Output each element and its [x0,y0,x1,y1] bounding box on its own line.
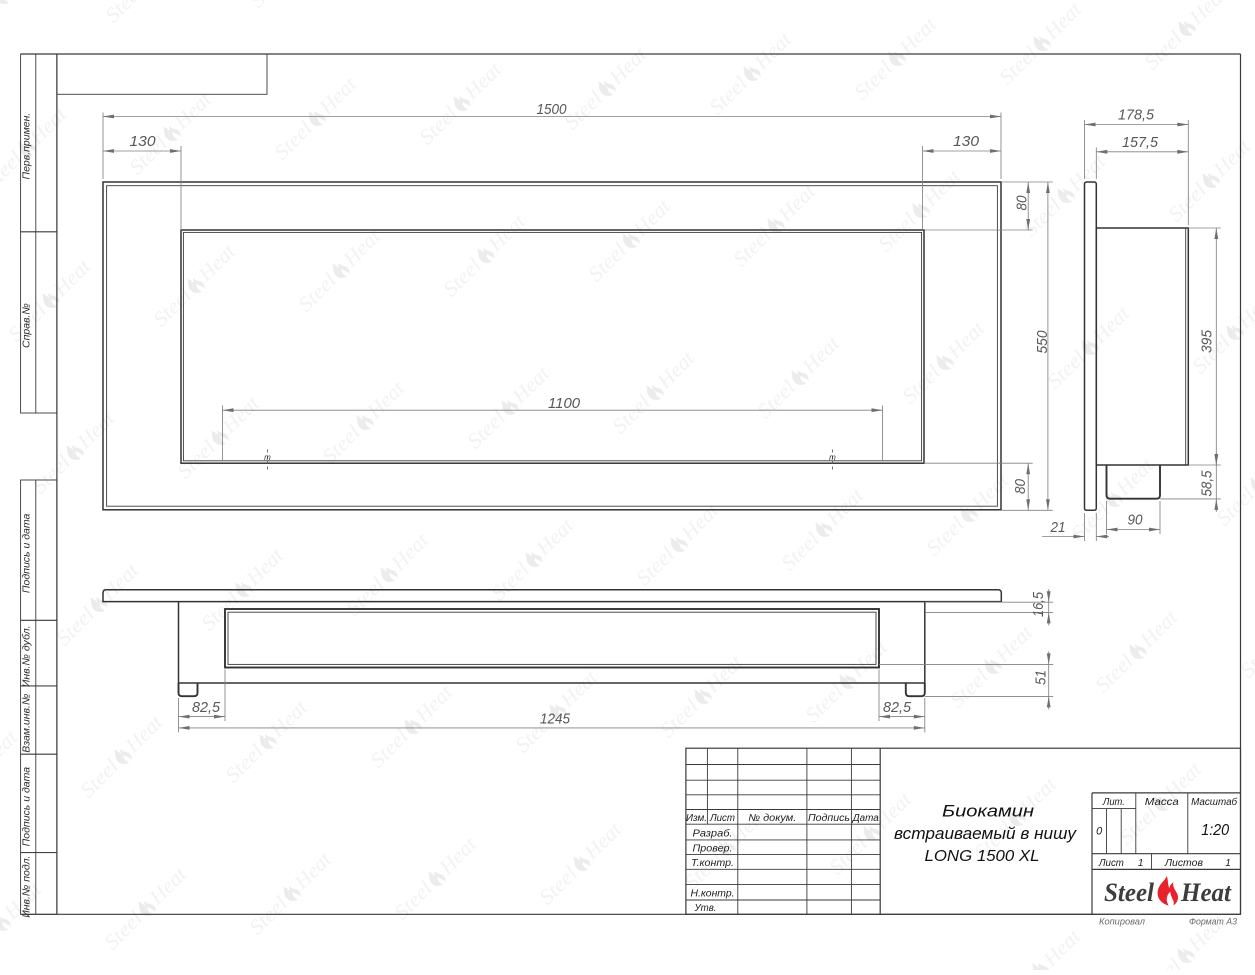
svg-text:82,5: 82,5 [192,699,221,716]
svg-text:16,5: 16,5 [1030,591,1047,617]
svg-text:Лист: Лист [709,813,735,824]
svg-text:Steel: Steel [1104,878,1155,907]
svg-text:Дата: Дата [852,813,879,824]
svg-text:Взам.инв.№: Взам.инв.№ [21,694,33,753]
svg-text:Heat: Heat [1180,878,1232,907]
svg-text:Инв.№ подл.: Инв.№ подл. [21,856,33,918]
svg-text:Масса: Масса [1145,797,1179,808]
svg-text:157,5: 157,5 [1122,134,1159,151]
svg-text:80: 80 [1014,195,1031,211]
svg-text:m: m [264,453,271,462]
svg-text:51: 51 [1032,670,1049,685]
svg-text:80: 80 [1012,478,1029,494]
svg-text:Изм.: Изм. [686,813,707,824]
svg-text:90: 90 [1128,512,1144,529]
svg-text:Лист: Лист [1098,858,1124,869]
svg-text:m: m [829,453,836,462]
svg-text:Разраб.: Разраб. [693,827,733,839]
svg-text:Н.контр.: Н.контр. [691,889,735,900]
svg-text:0: 0 [1096,826,1103,838]
svg-text:Лит.: Лит. [1102,797,1125,808]
svg-text:1100: 1100 [548,395,581,412]
svg-text:130: 130 [953,133,980,150]
svg-text:Т.контр.: Т.контр. [691,858,734,869]
svg-text:Листов: Листов [1164,858,1203,869]
svg-text:395: 395 [1199,329,1216,353]
svg-text:1: 1 [1225,858,1231,869]
svg-text:1500: 1500 [537,101,568,118]
svg-text:21: 21 [1050,519,1066,536]
svg-text:1:20: 1:20 [1201,822,1229,839]
svg-text:встраиваемый в нишу: встраиваемый в нишу [894,824,1078,843]
svg-text:550: 550 [1034,330,1051,354]
svg-text:Провер.: Провер. [693,843,733,854]
svg-text:Подпись: Подпись [808,813,850,824]
svg-text:Копировал: Копировал [1099,917,1145,927]
svg-text:Биокамин: Биокамин [942,802,1035,821]
svg-text:Масштаб: Масштаб [1191,796,1237,808]
svg-text:1: 1 [1138,858,1144,869]
svg-text:Утв.: Утв. [694,903,717,914]
svg-text:82,5: 82,5 [883,699,912,716]
svg-text:1245: 1245 [540,710,571,727]
svg-text:Подпись и дата: Подпись и дата [21,513,33,593]
svg-text:LONG 1500 XL: LONG 1500 XL [925,848,1040,865]
svg-text:Формат А3: Формат А3 [1189,917,1237,927]
svg-text:58,5: 58,5 [1198,470,1215,497]
svg-text:130: 130 [130,133,157,150]
svg-text:178,5: 178,5 [1118,107,1155,124]
svg-text:Подпись и дата: Подпись и дата [21,767,33,847]
svg-text:Инв.№ дубл.: Инв.№ дубл. [21,625,33,687]
svg-text:Перв.примен.: Перв.примен. [21,113,33,180]
svg-text:Справ.№: Справ.№ [21,303,33,348]
svg-text:№ докум.: № докум. [748,813,796,824]
